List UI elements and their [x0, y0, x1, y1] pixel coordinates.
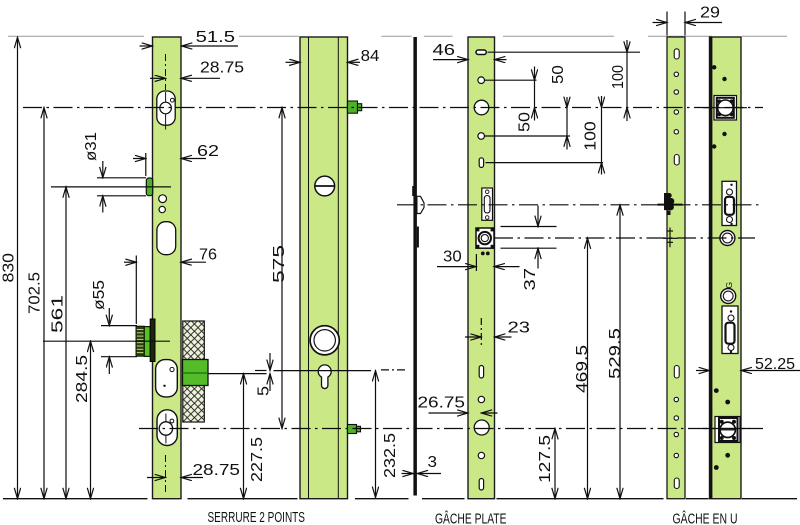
svg-text:227.5: 227.5: [249, 437, 266, 482]
svg-text:100: 100: [583, 121, 600, 151]
svg-text:3: 3: [428, 454, 438, 471]
svg-text:ø55: ø55: [91, 280, 108, 310]
svg-text:84: 84: [361, 48, 380, 65]
svg-text:284.5: 284.5: [74, 355, 91, 403]
svg-text:23: 23: [508, 320, 531, 337]
svg-text:52.25: 52.25: [755, 356, 795, 373]
svg-text:232.5: 232.5: [382, 433, 399, 478]
svg-text:575: 575: [271, 245, 288, 283]
svg-text:51.5: 51.5: [196, 29, 236, 46]
svg-text:28.75: 28.75: [200, 60, 244, 77]
svg-text:GÂCHE EN U: GÂCHE EN U: [673, 511, 738, 525]
svg-text:5: 5: [255, 386, 272, 396]
svg-text:469.5: 469.5: [574, 345, 591, 393]
svg-text:127.5: 127.5: [537, 435, 554, 483]
svg-text:702.5: 702.5: [27, 272, 44, 314]
svg-text:50: 50: [517, 112, 534, 132]
svg-text:GÂCHE PLATE: GÂCHE PLATE: [435, 511, 507, 525]
svg-text:62: 62: [197, 143, 219, 160]
svg-text:46: 46: [433, 42, 456, 59]
svg-text:26.75: 26.75: [418, 395, 466, 412]
svg-text:SERRURE 2 POINTS: SERRURE 2 POINTS: [208, 509, 306, 525]
svg-text:30: 30: [443, 249, 462, 266]
svg-text:ø31: ø31: [83, 132, 100, 161]
svg-text:529.5: 529.5: [607, 328, 624, 379]
svg-text:76: 76: [199, 247, 217, 264]
svg-text:37: 37: [522, 268, 539, 291]
svg-text:G: G: [724, 282, 734, 289]
svg-text:28.75: 28.75: [193, 462, 241, 479]
svg-text:561: 561: [50, 295, 67, 333]
svg-text:50: 50: [550, 65, 567, 84]
svg-text:100: 100: [610, 65, 627, 89]
svg-text:830: 830: [1, 253, 18, 283]
svg-text:29: 29: [700, 5, 720, 22]
